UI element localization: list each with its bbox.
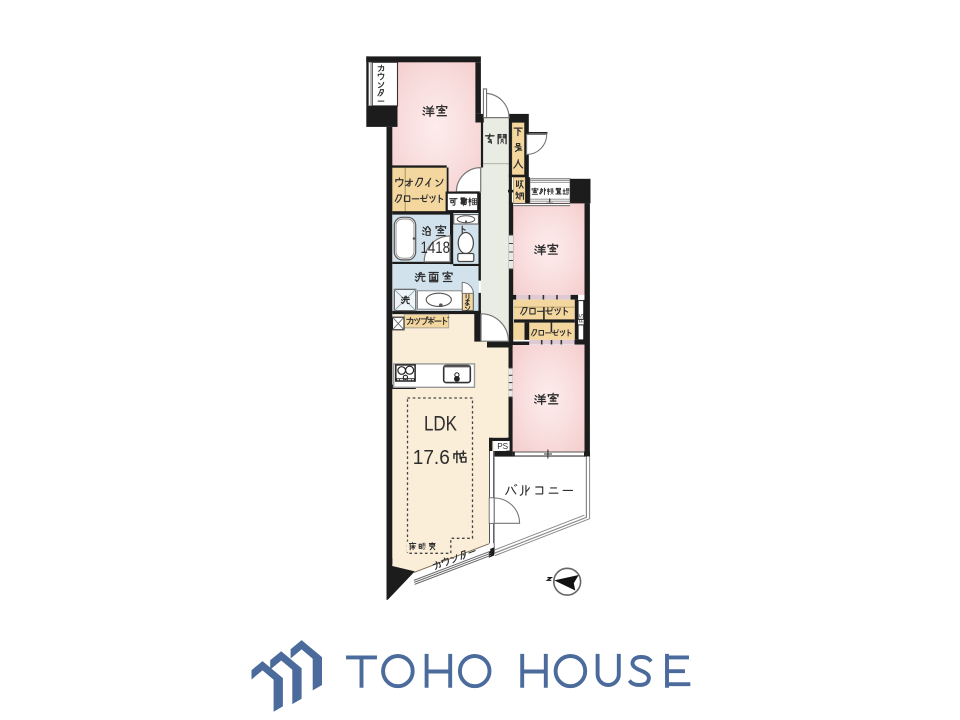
svg-text:PS: PS <box>579 314 585 323</box>
svg-text:PS: PS <box>497 442 508 451</box>
svg-text:LDK: LDK <box>424 412 458 436</box>
svg-text:17.6: 17.6 <box>413 447 450 469</box>
svg-text:1418: 1418 <box>421 239 451 257</box>
